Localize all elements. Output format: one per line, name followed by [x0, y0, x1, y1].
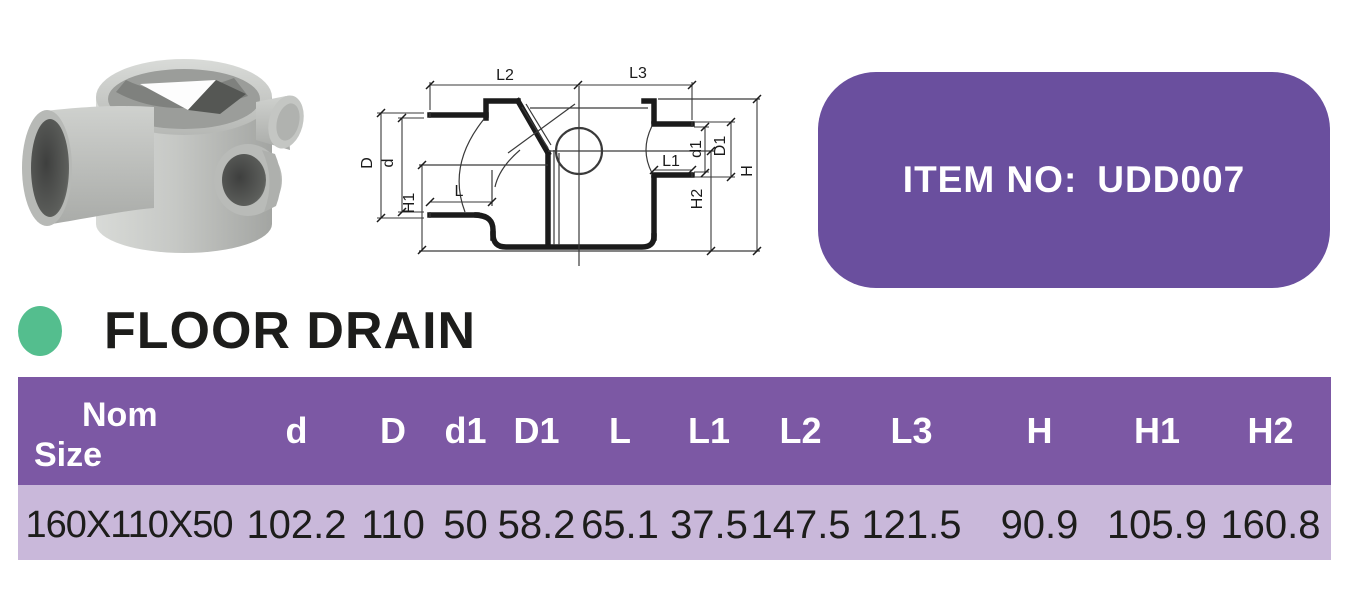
- cell-H: 90.9: [975, 485, 1104, 560]
- section-title-row: FLOOR DRAIN: [18, 303, 476, 359]
- cell-L3: 121.5: [848, 485, 975, 560]
- dim-label-L1: L1: [662, 153, 680, 170]
- dim-label-d1: d1: [688, 140, 705, 158]
- item-no-value: UDD007: [1097, 159, 1245, 201]
- dim-label-H2: H2: [689, 189, 706, 210]
- cell-d1: 50: [433, 485, 498, 560]
- col-header-L: L: [575, 377, 665, 485]
- spec-table-row: 160X110X50 102.2 110 50 58.2 65.1 37.5 1…: [18, 485, 1331, 560]
- dimension-lines: [377, 82, 757, 251]
- cell-d: 102.2: [240, 485, 353, 560]
- cell-D: 110: [353, 485, 433, 560]
- product-left-socket: [22, 106, 154, 226]
- col-header-H1: H1: [1104, 377, 1210, 485]
- nom-header-line2: Size: [34, 435, 240, 475]
- cell-nom-size: 160X110X50: [18, 485, 240, 560]
- col-header-nom-size: Nom Size: [18, 377, 240, 485]
- dim-label-L: L: [455, 183, 464, 200]
- col-header-D1: D1: [498, 377, 575, 485]
- dim-label-L2: L2: [496, 67, 514, 84]
- col-header-d: d: [240, 377, 353, 485]
- dimension-ticks: [377, 81, 761, 255]
- spec-table: Nom Size d D d1 D1 L L1 L2 L3 H H1 H2 16…: [18, 377, 1331, 560]
- technical-drawing: L2 L3 D d H1 L L1 d1 D1 H2 H: [350, 40, 790, 280]
- col-header-H2: H2: [1210, 377, 1331, 485]
- page-title: FLOOR DRAIN: [104, 301, 476, 361]
- item-no-label: ITEM NO:: [903, 159, 1077, 201]
- cell-L: 65.1: [575, 485, 665, 560]
- dim-label-L3: L3: [629, 65, 647, 82]
- nom-header-line1: Nom: [82, 395, 240, 435]
- dim-label-D1: D1: [712, 136, 729, 157]
- col-header-L1: L1: [665, 377, 753, 485]
- dim-label-H: H: [739, 165, 756, 177]
- cell-L1: 37.5: [665, 485, 753, 560]
- col-header-L3: L3: [848, 377, 975, 485]
- item-number-badge: ITEM NO: UDD007: [818, 72, 1330, 288]
- dim-label-d: d: [380, 159, 397, 168]
- spec-table-header: Nom Size d D d1 D1 L L1 L2 L3 H H1 H2: [18, 377, 1331, 485]
- drawing-walls: [430, 101, 692, 247]
- cell-H1: 105.9: [1104, 485, 1210, 560]
- catalog-page: L2 L3 D d H1 L L1 d1 D1 H2 H ITEM NO: UD…: [0, 0, 1352, 595]
- col-header-H: H: [975, 377, 1104, 485]
- col-header-L2: L2: [753, 377, 848, 485]
- cell-L2: 147.5: [753, 485, 848, 560]
- dim-label-D: D: [359, 157, 376, 169]
- col-header-D: D: [353, 377, 433, 485]
- col-header-d1: d1: [433, 377, 498, 485]
- product-photo: [20, 22, 340, 277]
- bullet-dot-icon: [18, 306, 62, 356]
- cell-D1: 58.2: [498, 485, 575, 560]
- product-front-outlet: [214, 144, 282, 216]
- dim-label-H1: H1: [401, 193, 418, 214]
- cell-H2: 160.8: [1210, 485, 1331, 560]
